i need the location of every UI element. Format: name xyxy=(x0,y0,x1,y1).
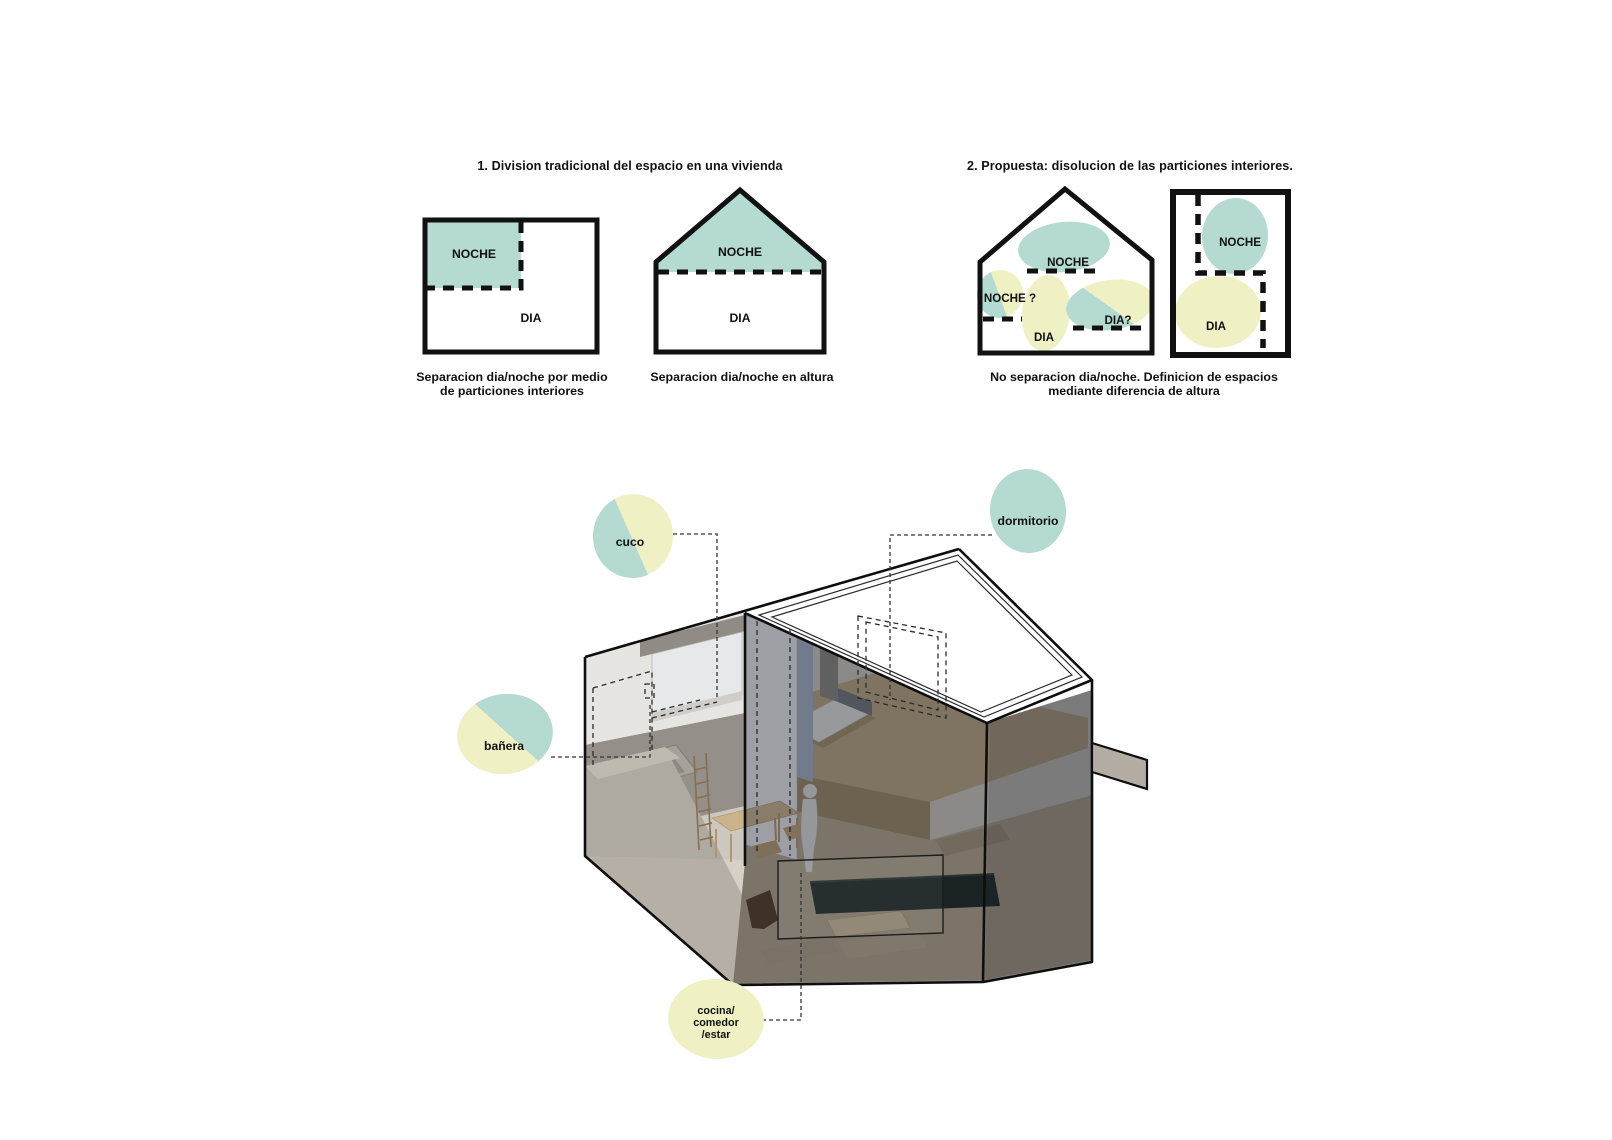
cocina-label-line3: /estar xyxy=(702,1029,732,1041)
house1-noche-label: NOCHE xyxy=(718,245,762,259)
architecture-diagram-page: 1. Division tradicional del espacio en u… xyxy=(0,0,1612,1140)
section2-caption-line1: No separacion dia/noche. Definicion de e… xyxy=(990,370,1278,384)
dormitorio-blob xyxy=(986,466,1069,556)
plan-caption-line2: de particiones interiores xyxy=(440,384,584,398)
house1-dia-label: DIA xyxy=(730,311,751,325)
plan-dia-label: DIA xyxy=(521,311,542,325)
section2-caption-line2: mediante diferencia de altura xyxy=(1048,384,1220,398)
section2-proposal: 2. Propuesta: disolucion de las particio… xyxy=(967,159,1293,398)
rect2-noche-label: NOCHE xyxy=(1219,236,1261,249)
plan-caption-line1: Separacion dia/noche por medio xyxy=(416,370,608,384)
house2-noche-label: NOCHE xyxy=(1047,256,1089,269)
banera-blob xyxy=(452,688,558,781)
house1-noche-zone xyxy=(657,191,823,272)
diagram-proposal-rect: NOCHE DIA xyxy=(1173,192,1288,355)
house1-caption: Separacion dia/noche en altura xyxy=(650,370,833,384)
concrete-bench xyxy=(1092,743,1147,789)
section1-title: 1. Division tradicional del espacio en u… xyxy=(477,159,783,173)
house2-noche-q-label: NOCHE ? xyxy=(984,292,1036,305)
section1-traditional-division: 1. Division tradicional del espacio en u… xyxy=(416,159,833,398)
right-glass-tint xyxy=(985,685,1092,980)
house2-dia-label: DIA xyxy=(1034,331,1055,344)
banera-label: bañera xyxy=(484,739,524,753)
cocina-label-line2: comedor xyxy=(693,1017,739,1029)
diagram-plan-partitions: NOCHE DIA Separacion dia/noche por medio… xyxy=(416,220,608,398)
section2-title: 2. Propuesta: disolucion de las particio… xyxy=(967,159,1293,173)
house2-dia-q-label: DIA? xyxy=(1104,314,1131,327)
plan-noche-label: NOCHE xyxy=(452,247,496,261)
dormitorio-label: dormitorio xyxy=(998,514,1059,528)
diagram-canvas: 1. Division tradicional del espacio en u… xyxy=(0,0,1612,1140)
cuco-label: cuco xyxy=(616,535,644,549)
diagram-section-height: NOCHE DIA Separacion dia/noche en altura xyxy=(650,190,833,384)
glass-balustrade xyxy=(778,855,943,939)
rect2-dia-label: DIA xyxy=(1206,320,1227,333)
cocina-label-line1: cocina/ xyxy=(697,1005,734,1017)
axonometric-house-model: cuco dormitorio bañera cocina/ comedor /… xyxy=(452,466,1147,1063)
diagram-proposal-house: NOCHE NOCHE ? DIA DIA? xyxy=(973,189,1157,353)
